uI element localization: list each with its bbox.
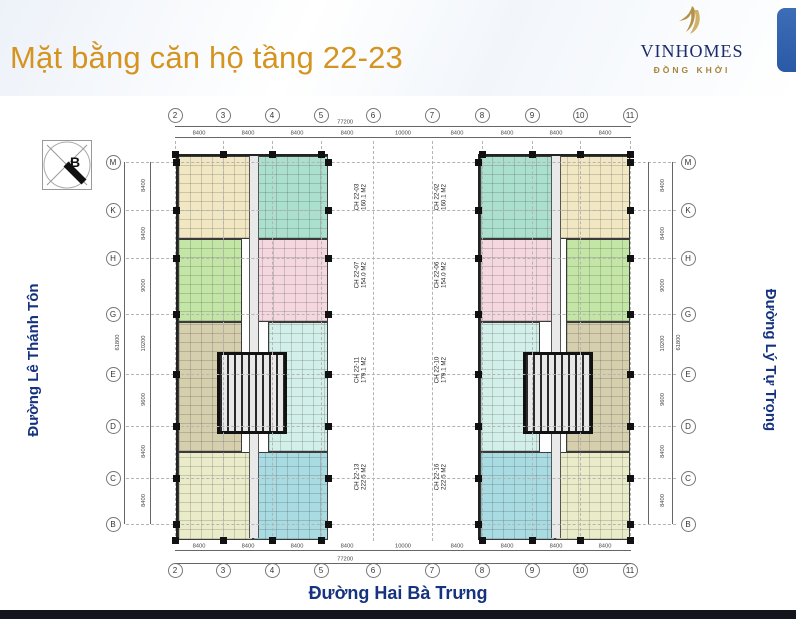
pier: [269, 537, 276, 544]
dimension-label: 8400: [140, 223, 146, 243]
dimension-label: 9600: [659, 389, 665, 409]
dimension-line: [150, 162, 151, 524]
grid-column-marker: 4: [265, 108, 280, 123]
dimension-label: 8400: [659, 441, 665, 461]
pier: [173, 207, 180, 214]
street-label-ly-tu-trong: Đường Lý Tự Trọng: [757, 210, 779, 510]
street-label-hai-ba-trung: Đường Hai Bà Trưng: [248, 583, 548, 604]
pier: [269, 151, 276, 158]
right-tower: [478, 154, 630, 540]
corridor: [249, 156, 259, 538]
grid-column-marker: 10: [573, 108, 588, 123]
pier: [627, 159, 634, 166]
grid-column-marker: 3: [216, 563, 231, 578]
grid-column-marker: 9: [525, 108, 540, 123]
grid-row-marker: E: [681, 367, 696, 382]
pier: [577, 537, 584, 544]
pier: [479, 537, 486, 544]
dimension-label: 8400: [497, 129, 517, 135]
grid-row-marker: G: [681, 307, 696, 322]
grid-line-horizontal: [126, 314, 676, 315]
dimension-line: [175, 126, 631, 127]
corridor: [551, 156, 561, 538]
grid-column-marker: 11: [623, 108, 638, 123]
elevator-core: [217, 352, 287, 434]
grid-column-marker: 8: [475, 108, 490, 123]
dimension-label: 8400: [546, 542, 566, 548]
grid-row-marker: E: [106, 367, 121, 382]
dimension-label: 8400: [237, 542, 257, 548]
apartment: [178, 452, 253, 540]
grid-column-marker: 5: [314, 563, 329, 578]
unit-label: CH 22-07154.0 M2: [353, 250, 367, 300]
apartment: [480, 452, 555, 540]
apartment: [555, 452, 630, 540]
pier: [627, 423, 634, 430]
grid-line-horizontal: [126, 258, 676, 259]
pier: [475, 255, 482, 262]
pier: [325, 423, 332, 430]
grid-line-horizontal: [126, 478, 676, 479]
grid-row-marker: K: [681, 203, 696, 218]
grid-row-marker: K: [106, 203, 121, 218]
pier: [479, 151, 486, 158]
blue-tab: [777, 8, 796, 72]
dimension-label: 8400: [659, 223, 665, 243]
dimension-label: 8400: [447, 542, 467, 548]
pier: [529, 537, 536, 544]
dimension-label: 8400: [595, 129, 615, 135]
grid-line-vertical: [321, 141, 322, 541]
pier: [318, 537, 325, 544]
pier: [173, 423, 180, 430]
apartment: [178, 239, 242, 322]
unit-label: CH 22-02160.1 M2: [433, 172, 447, 222]
grid-row-marker: H: [106, 251, 121, 266]
pier: [627, 371, 634, 378]
pier: [325, 311, 332, 318]
grid-line-horizontal: [126, 524, 676, 525]
dimension-label: 10200: [659, 333, 665, 353]
grid-line-horizontal: [126, 374, 676, 375]
unit-label: CH 22-10179.1 M2: [433, 345, 447, 395]
pier: [627, 207, 634, 214]
footer-bar: [0, 610, 796, 619]
pier: [220, 151, 227, 158]
pier: [475, 521, 482, 528]
elevator-core: [523, 352, 593, 434]
grid-column-marker: 7: [425, 108, 440, 123]
dimension-label: 10000: [392, 129, 412, 135]
dimension-line: [124, 162, 125, 524]
unit-label: CH 22-13222.5 M2: [353, 452, 367, 502]
pier: [220, 537, 227, 544]
dimension-label: 8400: [595, 542, 615, 548]
pier: [318, 151, 325, 158]
pier: [325, 371, 332, 378]
apartment: [480, 239, 558, 322]
dimension-label: 10000: [392, 542, 412, 548]
grid-line-vertical: [272, 141, 273, 541]
grid-line-vertical: [532, 141, 533, 541]
pier: [627, 521, 634, 528]
pier: [325, 475, 332, 482]
dimension-label: 8400: [546, 129, 566, 135]
dimension-line: [648, 162, 649, 524]
pier: [325, 159, 332, 166]
unit-label: CH 22-11179.1 M2: [353, 345, 367, 395]
grid-row-marker: B: [681, 517, 696, 532]
grid-column-marker: 10: [573, 563, 588, 578]
grid-column-marker: 8: [475, 563, 490, 578]
pier: [627, 475, 634, 482]
pier: [577, 151, 584, 158]
dimension-label: 8400: [659, 490, 665, 510]
pier: [475, 207, 482, 214]
pier: [173, 311, 180, 318]
dimension-label: 8400: [447, 129, 467, 135]
dimension-label: 8400: [286, 129, 306, 135]
grid-row-marker: C: [106, 471, 121, 486]
pier: [475, 423, 482, 430]
overall-height-label: 61800: [114, 332, 120, 352]
dimension-label: 10200: [140, 333, 146, 353]
dimension-label: 9000: [140, 275, 146, 295]
header: Mặt bằng căn hộ tầng 22-23 VINHOMES ĐỒNG…: [0, 0, 796, 96]
grid-row-marker: G: [106, 307, 121, 322]
apartment: [250, 239, 328, 322]
pier: [325, 255, 332, 262]
dimension-label: 8400: [140, 490, 146, 510]
dimension-label: 8400: [497, 542, 517, 548]
dimension-label: 8400: [237, 129, 257, 135]
logo-subtitle: ĐỒNG KHỞI: [630, 65, 754, 75]
street-label-le-thanh-ton: Đường Lê Thánh Tôn: [25, 210, 47, 510]
dimension-label: 8400: [189, 542, 209, 548]
dimension-label: 9600: [140, 389, 146, 409]
overall-width-label: 77200: [336, 118, 353, 124]
dimension-label: 8400: [140, 175, 146, 195]
grid-line-vertical: [482, 141, 483, 541]
dimension-line: [175, 137, 631, 138]
pier: [172, 537, 179, 544]
grid-column-marker: 6: [366, 563, 381, 578]
pier: [627, 537, 634, 544]
grid-column-marker: 11: [623, 563, 638, 578]
pier: [475, 475, 482, 482]
grid-column-marker: 3: [216, 108, 231, 123]
dimension-label: 8400: [337, 129, 357, 135]
unit-label: CH 22-06154.0 M2: [433, 250, 447, 300]
grid-column-marker: 2: [168, 563, 183, 578]
grid-line-horizontal: [126, 162, 676, 163]
dimension-line: [672, 162, 673, 524]
pier: [173, 371, 180, 378]
grid-column-marker: 2: [168, 108, 183, 123]
pier: [325, 521, 332, 528]
pier: [627, 255, 634, 262]
pier: [172, 151, 179, 158]
pier: [475, 159, 482, 166]
dimension-label: 8400: [140, 441, 146, 461]
pier: [627, 311, 634, 318]
unit-label: CH 22-03160.1 M2: [353, 172, 367, 222]
dimension-label: 8400: [189, 129, 209, 135]
grid-line-vertical: [373, 141, 374, 541]
pier: [475, 311, 482, 318]
unit-label: CH 22-16222.5 M2: [433, 452, 447, 502]
dimension-line: [175, 563, 631, 564]
dimension-line: [175, 550, 631, 551]
grid-line-vertical: [223, 141, 224, 541]
pier: [173, 159, 180, 166]
overall-height-label: 61800: [675, 332, 681, 352]
grid-row-marker: D: [106, 419, 121, 434]
compass-icon: B: [42, 140, 92, 190]
slide: Mặt bằng căn hộ tầng 22-23 VINHOMES ĐỒNG…: [0, 0, 796, 619]
grid-row-marker: C: [681, 471, 696, 486]
dimension-label: 8400: [286, 542, 306, 548]
grid-line-horizontal: [126, 210, 676, 211]
pier: [173, 255, 180, 262]
overall-width-label: 77200: [336, 555, 353, 561]
pier: [173, 475, 180, 482]
apartment: [480, 156, 555, 239]
apartment: [178, 156, 253, 239]
grid-column-marker: 6: [366, 108, 381, 123]
pier: [529, 151, 536, 158]
pier: [173, 521, 180, 528]
grid-row-marker: M: [681, 155, 696, 170]
page-title: Mặt bằng căn hộ tầng 22-23: [10, 40, 403, 76]
dimension-label: 8400: [659, 175, 665, 195]
grid-row-marker: D: [681, 419, 696, 434]
bird-icon: [675, 4, 709, 40]
grid-row-marker: B: [106, 517, 121, 532]
dimension-label: 8400: [337, 542, 357, 548]
logo-brand: VINHOMES: [630, 41, 754, 62]
grid-line-vertical: [580, 141, 581, 541]
pier: [627, 151, 634, 158]
grid-column-marker: 7: [425, 563, 440, 578]
grid-row-marker: M: [106, 155, 121, 170]
grid-line-horizontal: [126, 426, 676, 427]
grid-column-marker: 5: [314, 108, 329, 123]
compass-north-label: B: [70, 154, 80, 170]
apartment: [555, 156, 630, 239]
apartment: [253, 156, 328, 239]
dimension-label: 9000: [659, 275, 665, 295]
grid-column-marker: 9: [525, 563, 540, 578]
pier: [475, 371, 482, 378]
pier: [325, 207, 332, 214]
grid-column-marker: 4: [265, 563, 280, 578]
left-tower: [176, 154, 328, 540]
apartment: [566, 239, 630, 322]
apartment: [253, 452, 328, 540]
grid-row-marker: H: [681, 251, 696, 266]
vinhomes-logo: VINHOMES ĐỒNG KHỞI: [630, 4, 754, 75]
